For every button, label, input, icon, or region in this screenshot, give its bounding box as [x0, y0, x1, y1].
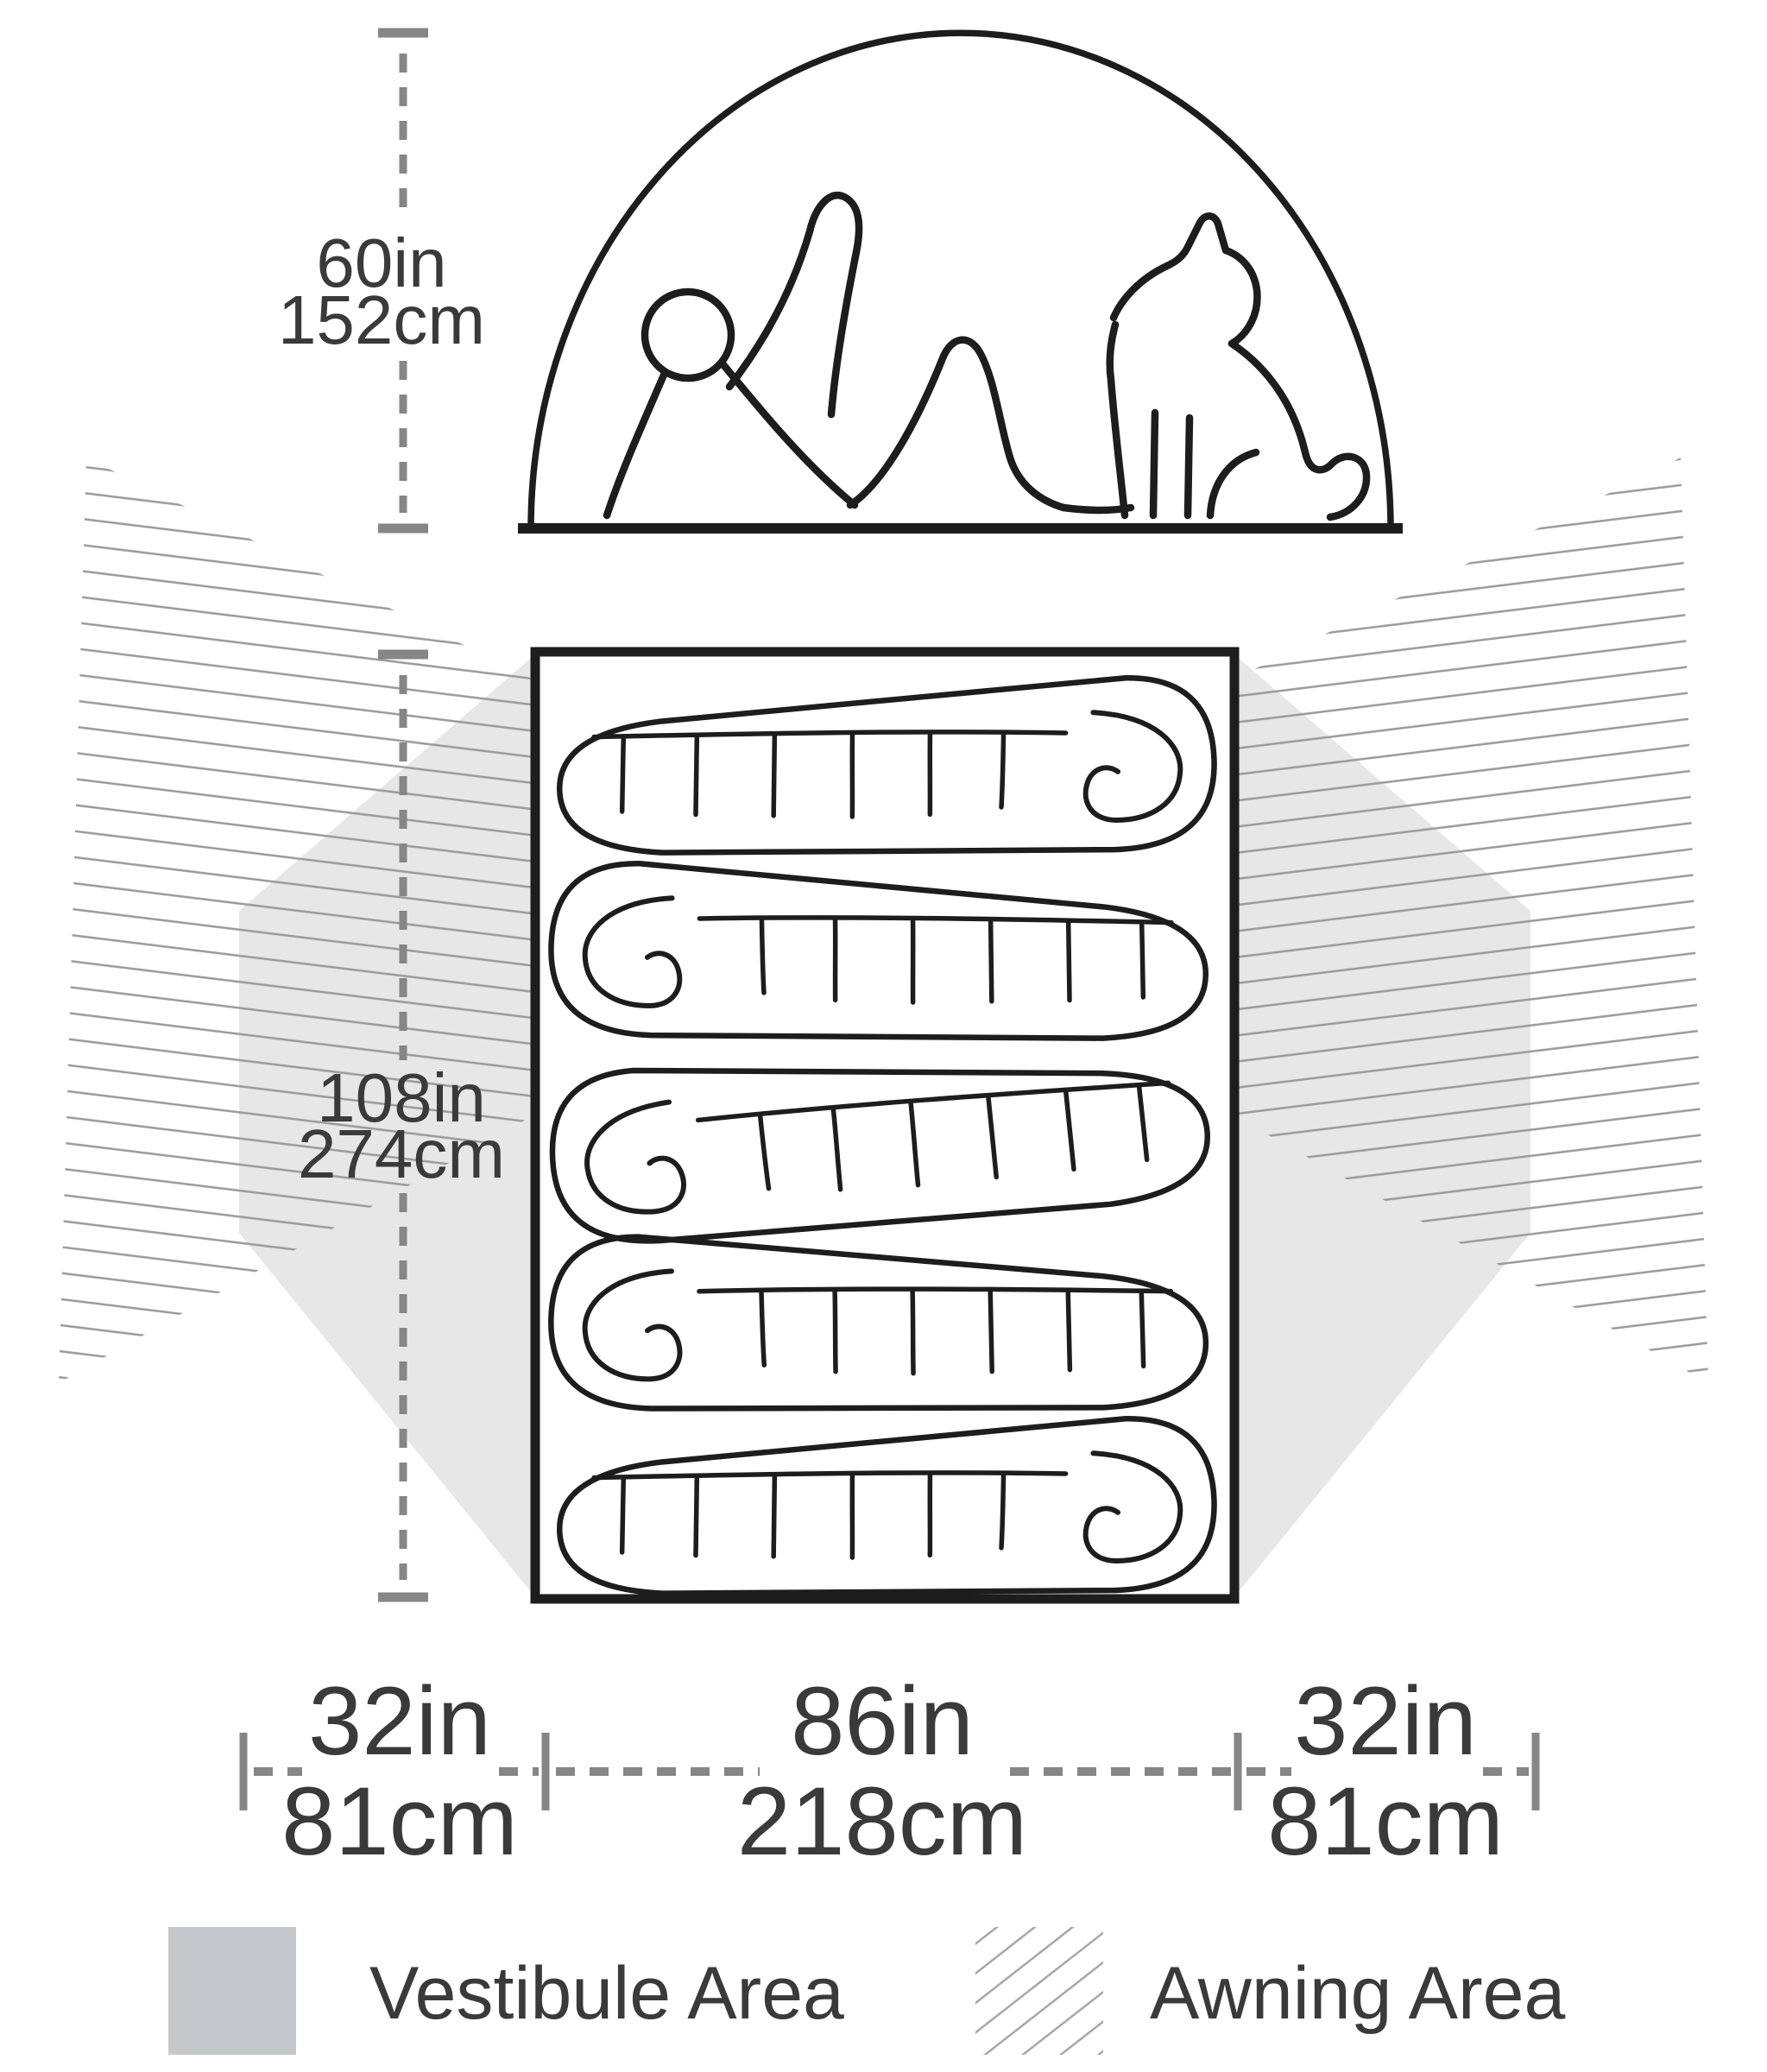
side-view [518, 33, 1403, 528]
awning-legend-label: Awning Area [1150, 1952, 1565, 2035]
person-figure [607, 195, 1131, 515]
width-left-label-cm: 81cm [281, 1767, 518, 1875]
width-center-label-cm: 218cm [737, 1767, 1027, 1875]
length-label-cm: 274cm [298, 1115, 505, 1192]
person-support-arm [607, 373, 665, 515]
height-label-cm: 152cm [278, 281, 485, 358]
dog-head [1114, 216, 1257, 344]
person-bent-leg [850, 340, 1063, 508]
width-center-label-in: 86in [791, 1667, 974, 1775]
awning-swatch [975, 1927, 1103, 2055]
dog-back-and-tail [1232, 344, 1366, 517]
dog-figure [1110, 216, 1366, 517]
width-right-label-cm: 81cm [1267, 1767, 1504, 1875]
width-left-label-in: 32in [308, 1667, 491, 1775]
vestibule-swatch [168, 1927, 296, 2055]
dog-front-leg [1153, 413, 1155, 515]
vestibule-legend-label: Vestibule Area [369, 1952, 844, 2035]
dog-chest [1110, 325, 1125, 515]
dog-haunch [1210, 452, 1256, 515]
dog-front-leg [1188, 418, 1190, 515]
floor-plan [59, 458, 1708, 1620]
tent-dimensions-diagram: 60in 152cm 108in 274cm 32in 81cm 86in 21… [0, 0, 1767, 2072]
width-right-label-in: 32in [1294, 1667, 1477, 1775]
diagram-svg: 60in 152cm 108in 274cm 32in 81cm 86in 21… [0, 0, 1767, 2072]
legend: Vestibule Area Awning Area [168, 1927, 1565, 2055]
person-head [645, 292, 731, 378]
person-raised-arm [729, 195, 859, 414]
tent-dome-outline [531, 33, 1391, 528]
